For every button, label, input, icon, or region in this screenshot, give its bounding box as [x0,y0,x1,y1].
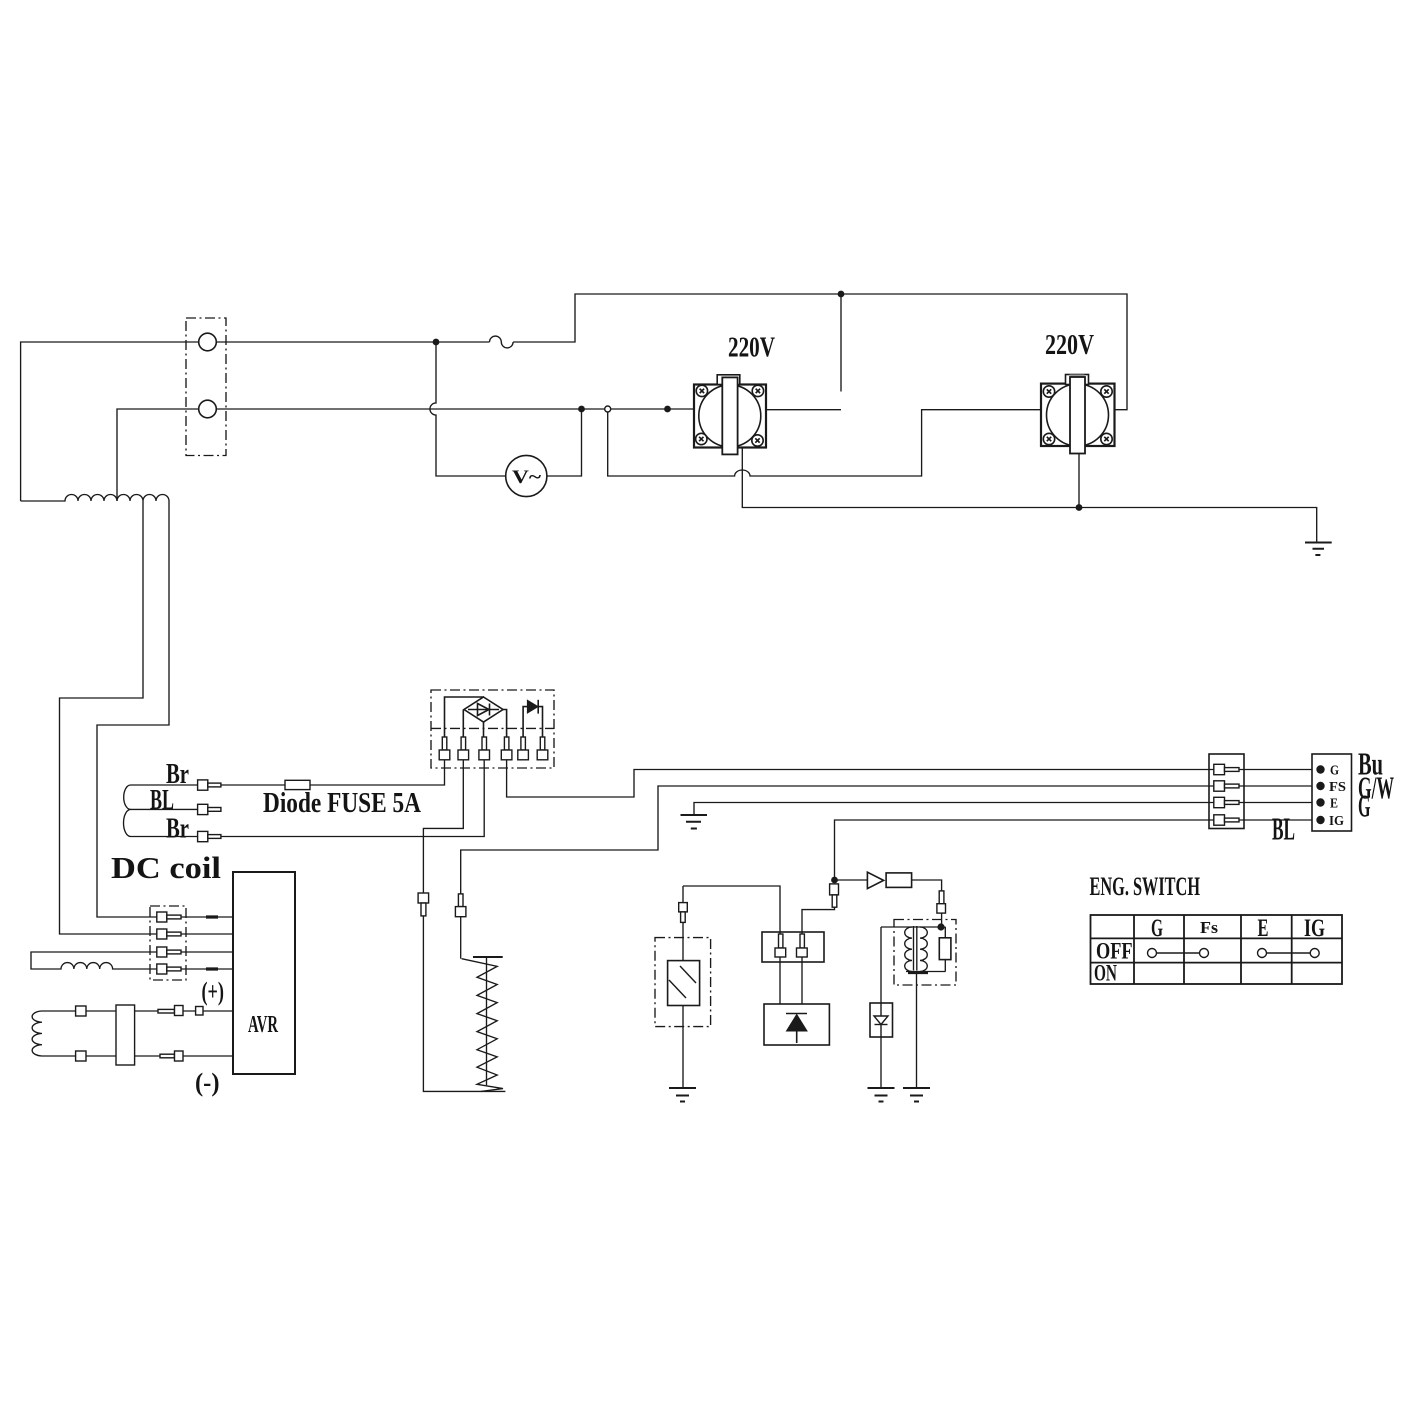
svg-text:220V: 220V [1045,329,1094,361]
svg-text:(+): (+) [202,977,225,1006]
svg-text:FS: FS [1329,780,1346,795]
svg-text:Fs: Fs [1200,918,1218,937]
svg-text:BL: BL [150,784,174,816]
svg-text:G: G [1358,788,1371,824]
svg-text:ON: ON [1094,961,1117,986]
svg-text:(-): (-) [195,1068,220,1097]
svg-text:IG: IG [1329,814,1344,829]
svg-text:G: G [1151,915,1163,942]
svg-text:DC coil: DC coil [111,850,221,885]
svg-text:Diode FUSE 5A: Diode FUSE 5A [263,787,421,819]
svg-text:V~: V~ [512,467,541,488]
svg-text:IG: IG [1304,915,1325,942]
svg-text:E: E [1330,797,1338,812]
svg-text:220V: 220V [728,332,775,364]
svg-text:G: G [1330,764,1339,779]
svg-text:ENG. SWITCH: ENG. SWITCH [1090,872,1201,901]
svg-text:Br: Br [166,813,189,845]
svg-text:AVR: AVR [248,1012,278,1038]
svg-text:E: E [1258,915,1269,942]
svg-text:BL: BL [1272,811,1295,847]
